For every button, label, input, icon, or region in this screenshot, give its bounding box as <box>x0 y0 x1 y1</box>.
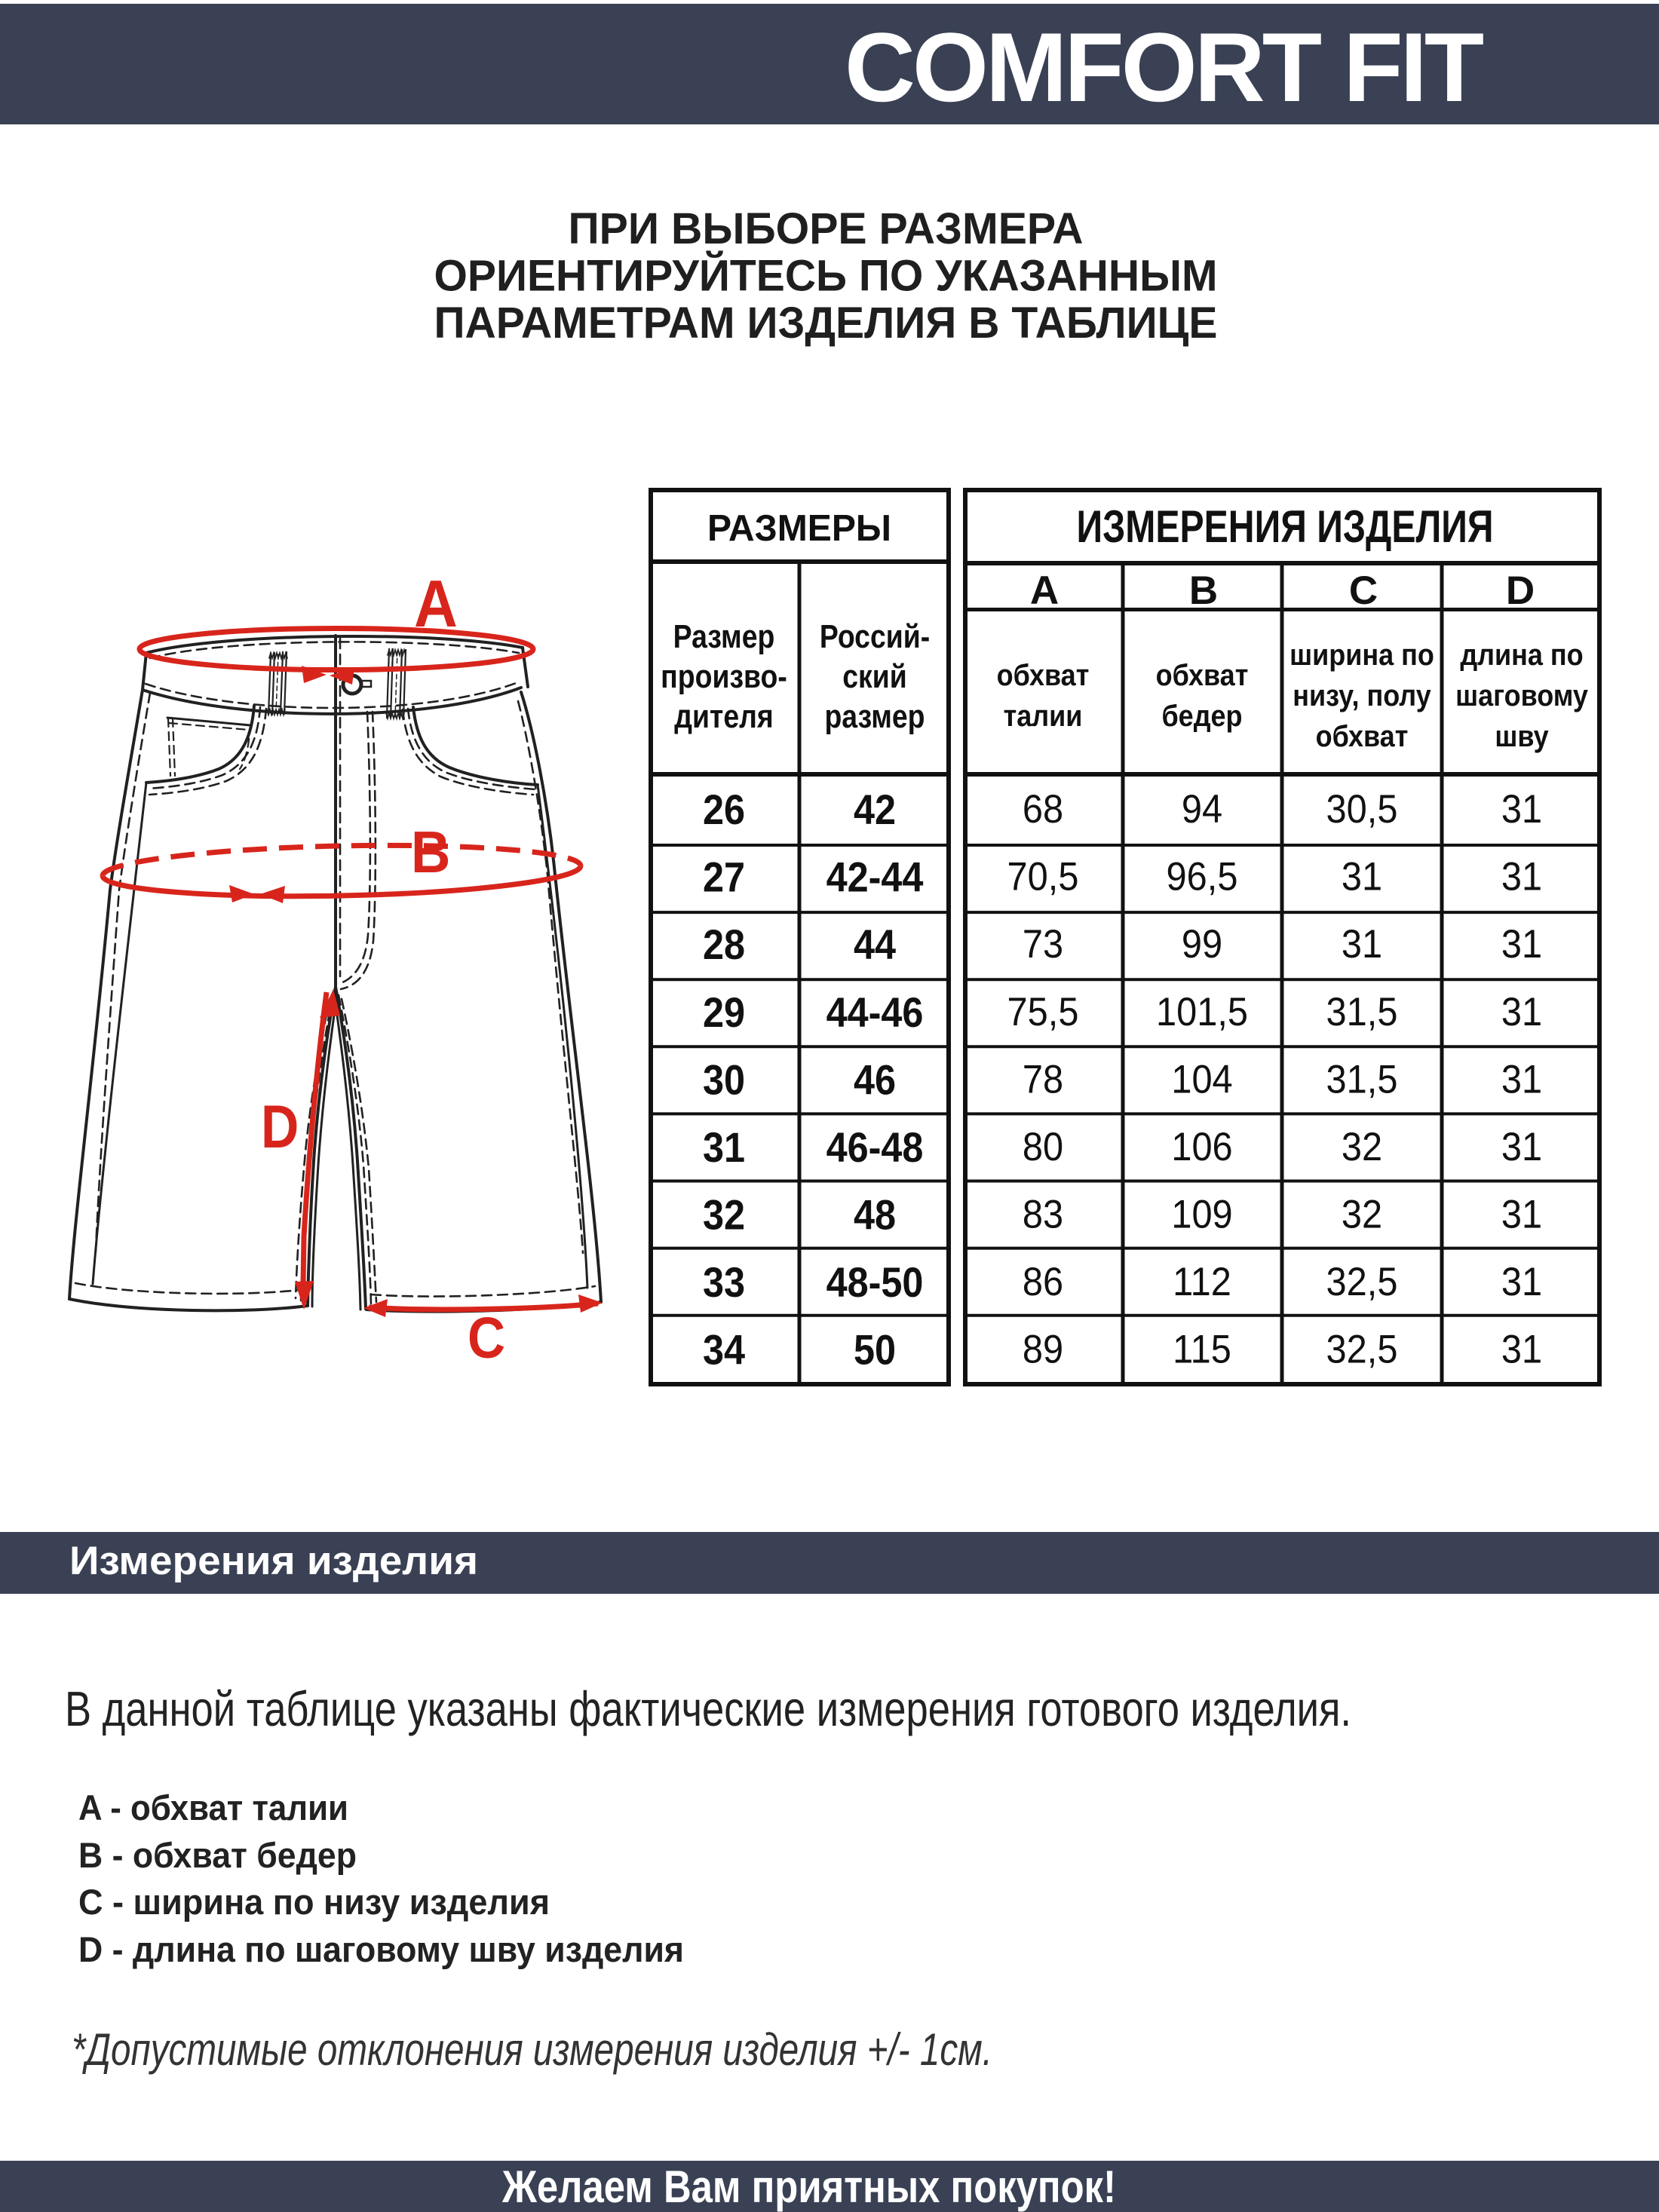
svg-text:44: 44 <box>854 922 896 969</box>
svg-text:31: 31 <box>1501 1327 1542 1371</box>
svg-text:32: 32 <box>1342 1192 1382 1236</box>
svg-text:32: 32 <box>1342 1124 1382 1169</box>
svg-text:31: 31 <box>1501 1056 1542 1101</box>
svg-text:112: 112 <box>1173 1259 1231 1304</box>
svg-text:31: 31 <box>1342 921 1382 966</box>
svg-text:A: A <box>1030 568 1059 613</box>
svg-text:80: 80 <box>1023 1124 1063 1169</box>
svg-text:99: 99 <box>1182 921 1222 966</box>
svg-text:РАЗМЕРЫ: РАЗМЕРЫ <box>707 508 891 549</box>
svg-text:31,5: 31,5 <box>1326 989 1398 1034</box>
svg-text:В данной таблице указаны факти: В данной таблице указаны фактические изм… <box>65 1681 1351 1736</box>
svg-text:27: 27 <box>703 854 745 901</box>
svg-text:78: 78 <box>1023 1056 1063 1101</box>
svg-text:94: 94 <box>1182 786 1222 831</box>
svg-text:89: 89 <box>1023 1327 1063 1371</box>
svg-text:75,5: 75,5 <box>1007 989 1079 1034</box>
svg-text:31,5: 31,5 <box>1326 1056 1398 1101</box>
svg-text:обхват: обхват <box>1156 659 1249 692</box>
svg-text:96,5: 96,5 <box>1167 854 1238 899</box>
svg-text:Россий-: Россий- <box>820 617 930 655</box>
svg-text:46-48: 46-48 <box>826 1124 924 1171</box>
svg-text:28: 28 <box>703 922 745 969</box>
svg-text:D: D <box>1506 568 1535 613</box>
svg-text:26: 26 <box>703 787 745 834</box>
svg-text:C: C <box>468 1306 505 1371</box>
svg-text:32: 32 <box>703 1192 745 1239</box>
svg-text:A - обхват талии: A - обхват талии <box>78 1788 348 1828</box>
svg-text:68: 68 <box>1023 786 1063 831</box>
svg-text:109: 109 <box>1171 1192 1232 1236</box>
svg-text:31: 31 <box>1501 921 1542 966</box>
svg-text:29: 29 <box>703 989 745 1036</box>
svg-text:30: 30 <box>703 1057 745 1104</box>
svg-text:COMFORT FIT: COMFORT FIT <box>845 12 1484 122</box>
svg-text:низу, полу: низу, полу <box>1293 679 1431 712</box>
svg-text:ПРИ ВЫБОРЕ РАЗМЕРА: ПРИ ВЫБОРЕ РАЗМЕРА <box>569 204 1084 253</box>
svg-text:B: B <box>1189 568 1218 613</box>
svg-text:73: 73 <box>1023 921 1063 966</box>
svg-text:ИЗМЕРЕНИЯ ИЗДЕЛИЯ: ИЗМЕРЕНИЯ ИЗДЕЛИЯ <box>1077 501 1494 552</box>
svg-text:83: 83 <box>1023 1192 1063 1236</box>
svg-text:ский: ский <box>842 657 906 695</box>
svg-text:шву: шву <box>1495 720 1548 753</box>
svg-text:ОРИЕНТИРУЙТЕСЬ ПО УКАЗАННЫМ: ОРИЕНТИРУЙТЕСЬ ПО УКАЗАННЫМ <box>434 252 1218 301</box>
svg-text:44-46: 44-46 <box>826 989 924 1036</box>
svg-text:31: 31 <box>1501 989 1542 1034</box>
svg-text:31: 31 <box>1501 1124 1542 1169</box>
svg-text:B: B <box>411 820 450 885</box>
svg-text:A: A <box>414 567 458 641</box>
svg-text:86: 86 <box>1023 1259 1063 1304</box>
svg-text:31: 31 <box>1342 854 1382 899</box>
svg-text:32,5: 32,5 <box>1326 1327 1398 1371</box>
svg-text:46: 46 <box>854 1057 896 1104</box>
svg-text:B - обхват бедер: B - обхват бедер <box>78 1835 357 1875</box>
svg-text:115: 115 <box>1173 1327 1231 1371</box>
svg-text:50: 50 <box>854 1327 896 1374</box>
svg-text:70,5: 70,5 <box>1007 854 1079 899</box>
svg-text:32,5: 32,5 <box>1326 1259 1398 1304</box>
svg-text:31: 31 <box>1501 1259 1542 1304</box>
svg-text:Желаем Вам приятных покупок!: Желаем Вам приятных покупок! <box>501 2161 1116 2212</box>
svg-text:D: D <box>261 1093 299 1161</box>
svg-text:Размер: Размер <box>673 617 775 655</box>
svg-text:48-50: 48-50 <box>826 1260 924 1307</box>
svg-text:48: 48 <box>854 1192 896 1239</box>
svg-text:30,5: 30,5 <box>1326 786 1398 831</box>
svg-text:31: 31 <box>1501 786 1542 831</box>
svg-text:31: 31 <box>1501 1192 1542 1236</box>
svg-text:обхват: обхват <box>1316 720 1409 753</box>
svg-text:C: C <box>1349 568 1378 613</box>
svg-text:длина по: длина по <box>1460 639 1583 672</box>
svg-text:106: 106 <box>1171 1124 1232 1169</box>
svg-text:101,5: 101,5 <box>1156 989 1248 1034</box>
svg-text:31: 31 <box>703 1124 745 1171</box>
svg-text:талии: талии <box>1004 700 1083 733</box>
svg-text:42-44: 42-44 <box>826 854 924 901</box>
svg-text:D - длина по шаговому шву изде: D - длина по шаговому шву изделия <box>78 1929 684 1969</box>
svg-text:42: 42 <box>854 787 896 834</box>
svg-text:ширина по: ширина по <box>1289 639 1434 672</box>
svg-text:34: 34 <box>703 1327 745 1374</box>
svg-text:размер: размер <box>824 697 925 735</box>
svg-text:31: 31 <box>1501 854 1542 899</box>
svg-text:Измерения изделия: Измерения изделия <box>69 1539 478 1583</box>
svg-text:шаговому: шаговому <box>1455 679 1588 712</box>
svg-text:104: 104 <box>1171 1056 1232 1101</box>
svg-text:ПАРАМЕТРАМ ИЗДЕЛИЯ В ТАБЛИЦЕ: ПАРАМЕТРАМ ИЗДЕЛИЯ В ТАБЛИЦЕ <box>434 299 1218 348</box>
svg-text:C - ширина по низу изделия: C - ширина по низу изделия <box>78 1882 550 1922</box>
svg-text:произво-: произво- <box>661 657 787 695</box>
svg-text:*Допустимые отклонения измерен: *Допустимые отклонения измерения изделия… <box>72 2024 992 2075</box>
svg-text:33: 33 <box>703 1260 745 1307</box>
svg-text:бедер: бедер <box>1161 700 1242 733</box>
svg-text:обхват: обхват <box>997 659 1090 692</box>
svg-text:дителя: дителя <box>674 697 773 735</box>
